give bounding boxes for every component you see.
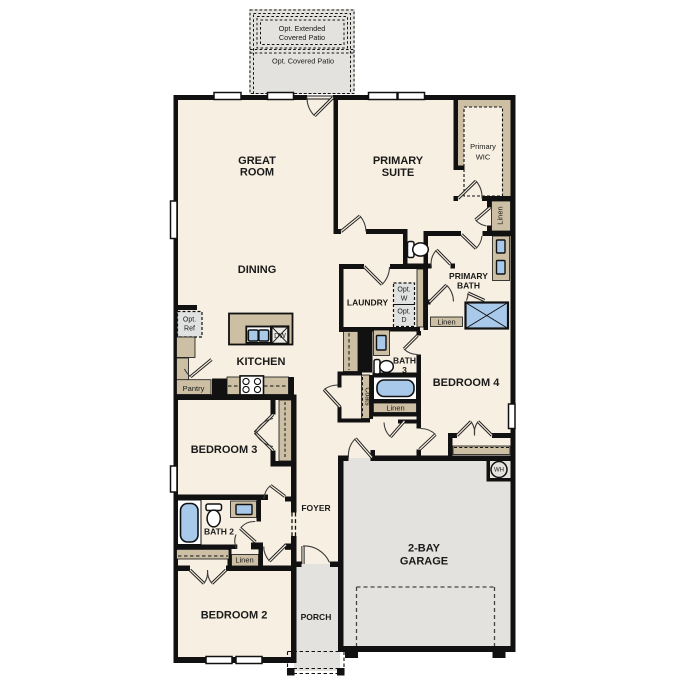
svg-text:Linen: Linen xyxy=(386,404,404,413)
svg-text:KITCHEN: KITCHEN xyxy=(237,356,286,368)
svg-text:Opt. Covered Patio: Opt. Covered Patio xyxy=(272,57,334,66)
svg-text:ROOM: ROOM xyxy=(240,167,274,179)
svg-text:SUITE: SUITE xyxy=(382,167,414,179)
svg-text:PRIMARY: PRIMARY xyxy=(373,155,424,167)
svg-text:DW: DW xyxy=(274,333,286,340)
svg-text:D: D xyxy=(401,317,406,324)
svg-text:LAUNDRY: LAUNDRY xyxy=(347,298,389,308)
svg-text:Linen: Linen xyxy=(437,318,455,327)
svg-text:BEDROOM 2: BEDROOM 2 xyxy=(201,610,268,622)
svg-text:Opt.: Opt. xyxy=(397,287,410,294)
svg-text:DINING: DINING xyxy=(238,264,277,276)
svg-text:Pantry: Pantry xyxy=(183,384,205,393)
svg-text:W: W xyxy=(401,296,408,303)
svg-text:BATH: BATH xyxy=(457,281,480,291)
svg-text:GARAGE: GARAGE xyxy=(400,556,448,568)
svg-text:WIC: WIC xyxy=(476,153,491,162)
svg-text:3: 3 xyxy=(402,365,407,375)
svg-text:PRIMARY: PRIMARY xyxy=(449,271,488,281)
svg-text:2-BAY: 2-BAY xyxy=(408,543,441,555)
svg-text:Primary: Primary xyxy=(470,142,496,151)
svg-text:Coats: Coats xyxy=(364,387,371,406)
svg-text:Opt.: Opt. xyxy=(397,309,410,316)
svg-text:Covered Patio: Covered Patio xyxy=(279,33,325,42)
svg-text:Linen: Linen xyxy=(235,556,253,565)
svg-text:FOYER: FOYER xyxy=(301,503,330,513)
svg-text:BEDROOM 3: BEDROOM 3 xyxy=(191,444,258,456)
svg-text:Linen: Linen xyxy=(496,206,505,224)
svg-text:Ref: Ref xyxy=(184,326,195,333)
svg-text:Opt.: Opt. xyxy=(183,317,196,324)
svg-text:BATH: BATH xyxy=(393,356,416,366)
svg-text:Opt. Extended: Opt. Extended xyxy=(279,24,326,33)
svg-text:BEDROOM 4: BEDROOM 4 xyxy=(433,377,501,389)
svg-text:WH: WH xyxy=(494,468,504,474)
svg-text:GREAT: GREAT xyxy=(238,155,276,167)
svg-text:BATH 2: BATH 2 xyxy=(204,527,234,537)
svg-text:PORCH: PORCH xyxy=(301,612,332,622)
